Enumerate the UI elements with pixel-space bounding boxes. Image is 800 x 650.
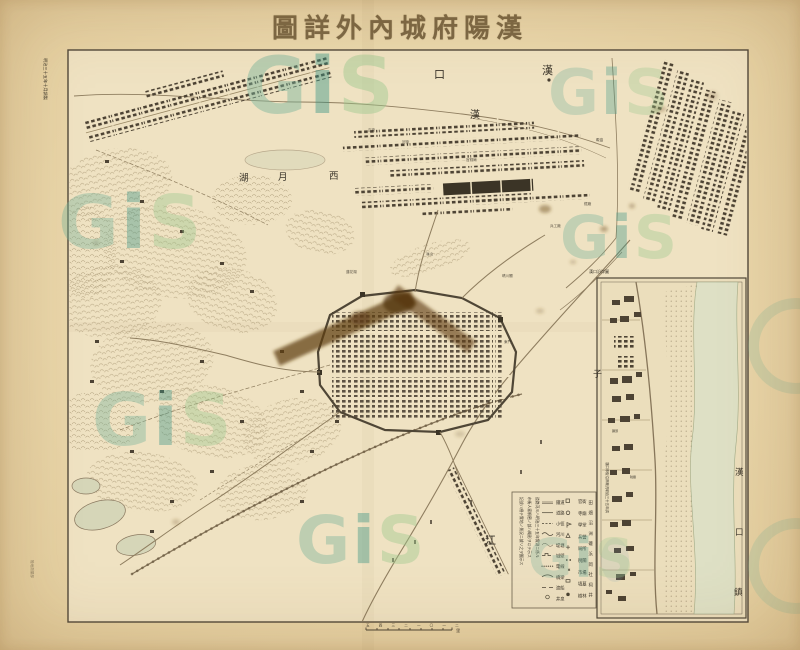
legend-item: 道路 — [556, 510, 565, 517]
legend-item: 堤塘 — [556, 542, 565, 549]
legend-item: 樹林 — [578, 592, 587, 599]
legend-item: 官衙 — [578, 498, 587, 505]
legend-item: 學堂 — [578, 522, 587, 529]
micro-label: 正街 — [368, 127, 376, 132]
legend-item: 田 — [589, 500, 593, 506]
inset-river-label-char: 口 — [735, 528, 744, 538]
label-xiyuehu-yue: 月 — [278, 172, 288, 183]
legend-item: 鐵道 — [556, 499, 565, 506]
legend-item: 洲 — [589, 532, 593, 537]
label-jiang: 江 — [485, 534, 496, 547]
inset-river — [690, 282, 738, 614]
inset-micro-label: 稅關 — [630, 474, 636, 479]
micro-label: 龜山 — [426, 251, 434, 256]
label-zi: 子 — [593, 369, 602, 380]
legend-item: 河川 — [556, 531, 565, 538]
inset-ink-stain — [601, 538, 629, 582]
legend-item: 寺廟 — [578, 510, 587, 517]
scale-bar: 五 四 三 二 一 〇 一 二 里 — [366, 623, 463, 634]
inset-micro-label: 碼頭 — [612, 428, 618, 433]
legend-item: 橋梁 — [556, 574, 565, 581]
legend-item: 社 — [589, 571, 594, 578]
legend-item: 局所 — [578, 545, 587, 552]
inset-top-note: 漢口沿岸圖 — [589, 268, 609, 274]
map-scan: 記號ハ總テ實地ノ景況ニ據リ之ヲ圖示ス 市街人家稠密ノ部ハ概形ヲ以テ示ス 道路河川… — [0, 0, 800, 650]
micro-label: 兵工廠 — [550, 223, 561, 228]
inset-map: 漢口市街沿岸概況明治三十五年調 碼頭 稅關 漢口沿岸圖 漢 口 鎮 — [589, 268, 746, 618]
legend: 記號ハ總テ實地ノ景況ニ據リ之ヲ圖示ス 市街人家稠密ノ部ハ概形ヲ以テ示ス 道路河川… — [512, 492, 596, 608]
scanned-map-page: 記號ハ總テ實地ノ景況ニ據リ之ヲ圖示ス 市街人家稠密ノ部ハ概形ヲ以テ示ス 道路河川… — [0, 0, 800, 650]
micro-label: 晴川閣 — [502, 273, 513, 278]
legend-item: 祠 — [589, 581, 593, 588]
label-hankou-kou: 口 — [434, 68, 445, 81]
legend-item: 磯 — [589, 540, 594, 547]
legend-item: 墳墓 — [578, 581, 587, 588]
label-hankou-han: 漢 — [542, 64, 553, 77]
left-margin-note: 明治三十五年十月調製 — [42, 58, 49, 100]
page-title: 圖詳外內城府陽漢 — [0, 8, 800, 45]
micro-label: 河街 — [402, 139, 410, 144]
legend-item: 市場 — [578, 569, 587, 576]
label-xiyuehu-xi: 西 — [329, 171, 339, 182]
legend-note: 市街人家稠密ノ部ハ概形ヲ以テ示ス — [527, 497, 532, 558]
legend-item: 井 — [589, 592, 594, 599]
legend-item: 畑 — [589, 509, 594, 516]
label-xiyuehu-hu: 湖 — [239, 173, 249, 184]
scale-marks: 五 四 三 二 一 〇 一 二 — [366, 623, 463, 628]
scale-bar-line — [366, 628, 452, 631]
micro-label: 東門 — [504, 339, 512, 344]
map-point-mark — [547, 78, 550, 81]
inset-side-note: 漢口市街沿岸概況明治三十五年調 — [605, 462, 610, 513]
micro-label: 礮臺 — [596, 137, 604, 142]
legend-item: 小徑 — [556, 520, 565, 527]
legend-item: 電線 — [556, 563, 565, 570]
legend-labels-colB: 官衙 寺廟 學堂 兵營 局所 稅關 市場 墳墓 樹林 — [578, 498, 587, 599]
legend-note: 道路河川ハ明治三十五年實測ニ係ル — [535, 497, 540, 558]
scale-unit: 里 — [456, 628, 460, 633]
legend-item: 稅關 — [578, 557, 587, 564]
micro-label: 蓮花湖 — [346, 269, 357, 274]
legend-item: 井泉 — [556, 595, 565, 602]
legend-item: 沼 — [589, 520, 593, 527]
label-hanshui: 漢 — [470, 108, 480, 121]
inset-river-label-char: 漢 — [735, 467, 744, 478]
legend-item: 浜 — [589, 551, 594, 558]
legend-item: 城壁 — [556, 553, 565, 560]
legend-item: 渡船 — [556, 585, 565, 592]
legend-note: 記號ハ總テ實地ノ景況ニ據リ之ヲ圖示ス — [519, 497, 524, 566]
inset-river-label-char: 鎮 — [734, 587, 743, 598]
micro-label: 鐵廠 — [584, 201, 592, 206]
legend-item: 兵營 — [578, 533, 587, 540]
legend-item: 岡 — [589, 562, 593, 568]
micro-label: 官錢局 — [466, 157, 477, 162]
left-margin-note-2: 陸地測量部 — [30, 560, 35, 578]
